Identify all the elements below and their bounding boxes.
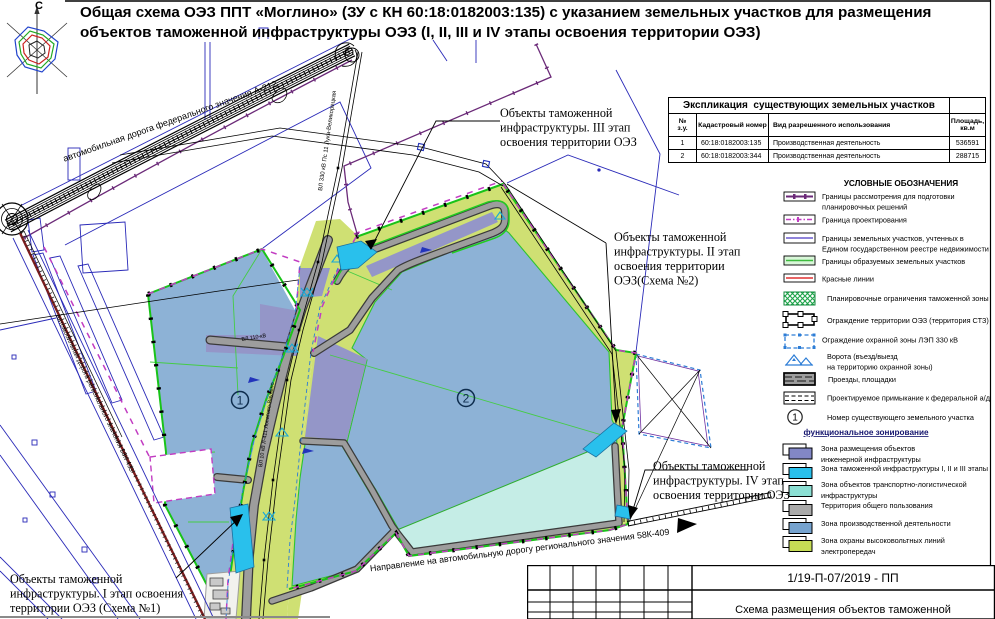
svg-text:инфраструктуры: инфраструктуры (821, 491, 877, 500)
svg-text:Зона объектов транспортно-логи: Зона объектов транспортно-логистической (821, 480, 967, 489)
svg-text:С: С (35, 0, 43, 12)
svg-text:Объекты таможенной: Объекты таможенной (10, 572, 123, 586)
svg-text:Зона размещения объектов: Зона размещения объектов (821, 444, 915, 453)
svg-text:Проектируемое примыкание к фед: Проектируемое примыкание к федеральной а… (827, 394, 991, 403)
svg-text:освоения территории: освоения территории (614, 259, 725, 273)
svg-text:на территорию охранной зоны): на территорию охранной зоны) (827, 363, 933, 372)
svg-text:освоения территории ОЭЗ: освоения территории ОЭЗ (500, 135, 637, 149)
svg-text:ВЛ 330 кВ Пс 11 Лука-Великоре: ВЛ 330 кВ Пс 11 Лука-Великорецкая (318, 90, 338, 191)
svg-text:Красные линии: Красные линии (822, 275, 874, 284)
svg-text:электропередач: электропередач (821, 547, 876, 556)
svg-text:Зона охраны высоковольтных лин: Зона охраны высоковольтных линий (821, 536, 945, 545)
svg-text:Проезды, площадки: Проезды, площадки (828, 375, 896, 384)
svg-text:Зона производственной деятельн: Зона производственной деятельности (821, 519, 951, 528)
svg-text:Ворота (въезд/выезд: Ворота (въезд/выезд (827, 352, 898, 361)
svg-text:территории ОЭЗ (Схема №1): территории ОЭЗ (Схема №1) (10, 601, 160, 615)
svg-text:инфраструктуры. III этап: инфраструктуры. III этап (500, 121, 631, 135)
svg-text:1: 1 (237, 394, 244, 408)
svg-text:Границы рассмотрения для подго: Границы рассмотрения для подготовки (822, 192, 955, 201)
svg-text:Едином государственном реестре: Едином государственном реестре недвижимо… (822, 245, 989, 254)
svg-text:2: 2 (463, 392, 470, 406)
svg-text:Планировочные ограничения тамо: Планировочные ограничения таможенной зон… (827, 294, 989, 303)
svg-text:инфраструктуры. II этап: инфраструктуры. II этап (614, 245, 741, 259)
svg-text:1: 1 (792, 413, 798, 424)
svg-text:Территория общего пользования: Территория общего пользования (821, 501, 933, 510)
svg-text:Границы земельных участков, уч: Границы земельных участков, учтенных в (822, 234, 964, 243)
svg-text:Граница проектирования: Граница проектирования (822, 216, 907, 225)
svg-text:инженерной инфраструктуры: инженерной инфраструктуры (821, 455, 921, 464)
svg-text:Границы образуемых земельных у: Границы образуемых земельных участков (822, 257, 965, 266)
svg-text:Зона таможенной инфраструктуры: Зона таможенной инфраструктуры I, II и I… (821, 464, 988, 473)
svg-text:1/19-П-07/2019 - ПП: 1/19-П-07/2019 - ПП (787, 571, 898, 585)
svg-text:инфраструктуры. I этап освоени: инфраструктуры. I этап освоения (10, 587, 184, 601)
svg-text:УСЛОВНЫЕ ОБОЗНАЧЕНИЯ: УСЛОВНЫЕ ОБОЗНАЧЕНИЯ (844, 179, 958, 188)
svg-text:Номер существующего земельного: Номер существующего земельного участка (827, 413, 975, 422)
svg-text:Ограждение территории ОЭЗ (тер: Ограждение территории ОЭЗ (территория СТ… (827, 316, 989, 325)
svg-text:Ограждение охранной зоны ЛЭП 3: Ограждение охранной зоны ЛЭП 330 кВ (822, 336, 958, 345)
svg-text:функциональное зонирование: функциональное зонирование (803, 428, 929, 437)
svg-text:инфраструктуры. IV этап: инфраструктуры. IV этап (653, 474, 784, 488)
svg-text:Объекты таможенной: Объекты таможенной (653, 459, 766, 473)
svg-text:Схема размещения объектов тамо: Схема размещения объектов таможенной (735, 604, 951, 616)
svg-text:Объекты таможенной: Объекты таможенной (500, 106, 613, 120)
svg-text:Объекты таможенной: Объекты таможенной (614, 230, 727, 244)
svg-text:планировочных решений: планировочных решений (822, 203, 907, 212)
svg-text:ОЭЗ(Схема №2): ОЭЗ(Схема №2) (614, 274, 698, 288)
